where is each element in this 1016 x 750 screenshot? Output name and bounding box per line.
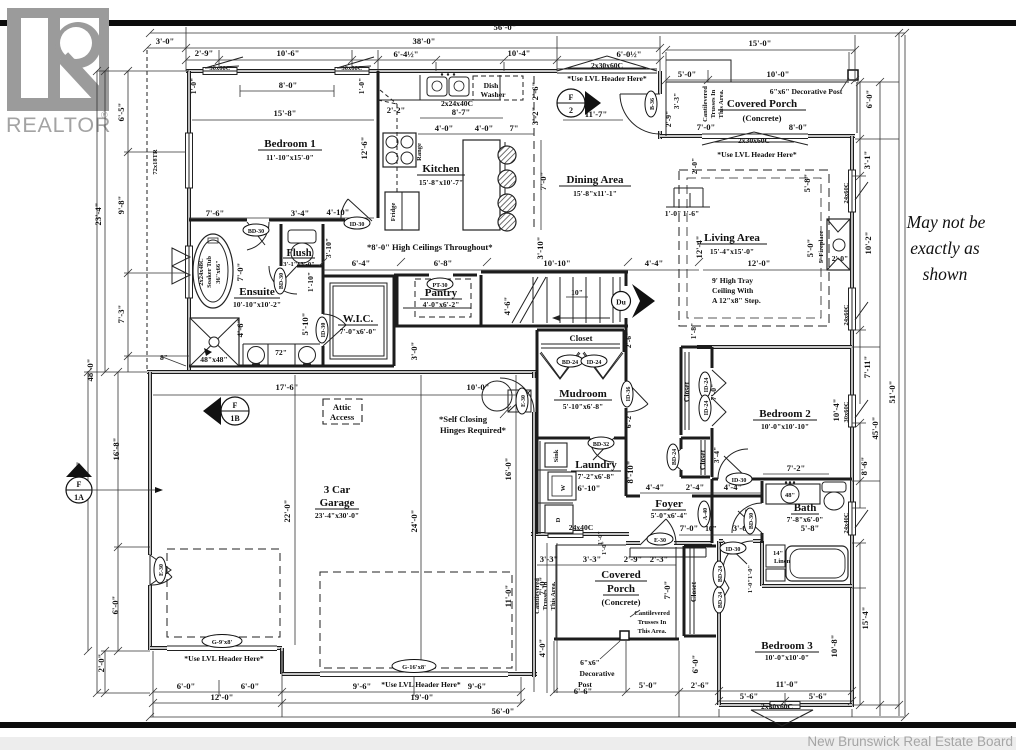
svg-text:2'-0": 2'-0" <box>96 654 106 673</box>
svg-text:Hinges Required*: Hinges Required* <box>440 425 506 435</box>
svg-text:10'-0": 10'-0" <box>767 69 790 79</box>
svg-text:Garage: Garage <box>320 497 355 509</box>
svg-text:Porch: Porch <box>607 583 635 595</box>
svg-text:3'-4": 3'-4" <box>291 208 310 218</box>
svg-text:A 12"x8" Step.: A 12"x8" Step. <box>712 296 761 305</box>
svg-text:6'-4½": 6'-4½" <box>393 49 418 59</box>
svg-text:6'-8": 6'-8" <box>434 258 453 268</box>
svg-text:10'-10"x10'-2": 10'-10"x10'-2" <box>233 300 281 309</box>
svg-text:Closet: Closet <box>698 449 707 470</box>
svg-text:2'-9": 2'-9" <box>664 111 673 127</box>
svg-text:24x60C: 24x60C <box>843 304 850 325</box>
svg-text:4'-0": 4'-0" <box>435 123 454 133</box>
svg-text:24x40C: 24x40C <box>843 512 850 533</box>
svg-text:1'-8": 1'-8" <box>689 323 698 339</box>
svg-text:9'-6": 9'-6" <box>468 681 487 691</box>
svg-text:(Concrete): (Concrete) <box>602 597 641 607</box>
svg-text:7'-0": 7'-0" <box>537 577 547 596</box>
svg-text:10'-6": 10'-6" <box>277 48 300 58</box>
svg-text:10'-0"x10'-0": 10'-0"x10'-0" <box>765 653 809 662</box>
svg-text:3'-10": 3'-10" <box>535 237 545 260</box>
svg-text:Trusses In: Trusses In <box>710 89 717 118</box>
svg-text:7'-3": 7'-3" <box>116 305 126 324</box>
svg-text:Cantilevered: Cantilevered <box>702 86 709 122</box>
svg-text:2'-6": 2'-6" <box>530 82 540 101</box>
svg-text:Closet: Closet <box>689 581 698 602</box>
svg-text:Range: Range <box>416 143 423 161</box>
svg-text:9'-8": 9'-8" <box>116 196 126 215</box>
svg-text:2x24x48C: 2x24x48C <box>198 258 205 286</box>
svg-text:3'-3": 3'-3" <box>672 93 681 109</box>
svg-text:BD-24: BD-24 <box>672 449 678 465</box>
svg-text:22'-0": 22'-0" <box>282 500 292 523</box>
svg-text:*Use LVL Header Here*: *Use LVL Header Here* <box>567 74 647 83</box>
svg-text:6'-10": 6'-10" <box>578 483 601 493</box>
svg-text:4'-0"x6'-2": 4'-0"x6'-2" <box>423 300 460 309</box>
svg-text:Bedroom 3: Bedroom 3 <box>761 640 813 652</box>
svg-text:15'-8"x10'-7": 15'-8"x10'-7" <box>419 178 463 187</box>
svg-text:2'-4": 2'-4" <box>686 482 705 492</box>
svg-text:Dish: Dish <box>484 81 500 90</box>
svg-text:7": 7" <box>509 123 518 133</box>
svg-text:12'-0": 12'-0" <box>748 258 771 268</box>
svg-text:10'-0": 10'-0" <box>467 382 490 392</box>
svg-text:shown: shown <box>923 264 968 284</box>
svg-text:ID-36: ID-36 <box>626 387 632 402</box>
svg-text:PT-30: PT-30 <box>432 283 447 289</box>
svg-text:4'-0": 4'-0" <box>537 639 547 658</box>
svg-text:45'-0": 45'-0" <box>870 417 880 440</box>
svg-text:5'-8": 5'-8" <box>801 523 820 533</box>
svg-text:16'-8": 16'-8" <box>111 438 121 461</box>
svg-text:Bedroom 1: Bedroom 1 <box>264 138 315 150</box>
svg-text:16'-0": 16'-0" <box>503 458 513 481</box>
svg-text:10'-4": 10'-4" <box>831 399 841 422</box>
svg-text:11'-0": 11'-0" <box>776 679 798 689</box>
svg-text:4'-4": 4'-4" <box>645 258 664 268</box>
svg-text:Closet: Closet <box>682 381 691 402</box>
svg-text:3'-3": 3'-3" <box>583 554 602 564</box>
svg-text:May not be: May not be <box>906 212 986 232</box>
svg-text:7'-2"x6'-8": 7'-2"x6'-8" <box>578 472 615 481</box>
svg-text:Linen: Linen <box>774 558 791 565</box>
svg-text:6'-5": 6'-5" <box>116 103 126 122</box>
svg-text:BD-32: BD-32 <box>593 442 609 448</box>
svg-text:7'-0": 7'-0" <box>538 172 548 191</box>
svg-text:Covered: Covered <box>601 569 641 581</box>
svg-text:REALTOR: REALTOR <box>6 113 111 137</box>
svg-text:24x40C: 24x40C <box>569 523 593 532</box>
svg-text:B-36: B-36 <box>650 98 656 110</box>
svg-text:15'-8"x11'-1": 15'-8"x11'-1" <box>573 189 617 198</box>
svg-text:New Brunswick Real Estate Boar: New Brunswick Real Estate Board <box>807 734 1013 749</box>
svg-text:10'-10": 10'-10" <box>543 258 570 268</box>
svg-text:2'-9": 2'-9" <box>195 48 214 58</box>
svg-text:6"x6" Decorative Post: 6"x6" Decorative Post <box>770 87 843 96</box>
svg-text:1'-10": 1'-10" <box>306 272 315 292</box>
svg-text:A-40: A-40 <box>703 508 709 520</box>
svg-text:3'-1"x3'-0": 3'-1"x3'-0" <box>283 261 314 268</box>
svg-text:Ceiling With: Ceiling With <box>712 286 754 295</box>
svg-text:5'-6": 5'-6" <box>809 691 828 701</box>
svg-text:Flush: Flush <box>286 248 311 259</box>
svg-text:10'-8": 10'-8" <box>829 635 839 658</box>
svg-text:Covered Porch: Covered Porch <box>727 98 797 110</box>
svg-text:Access: Access <box>330 412 355 422</box>
svg-text:2'-9": 2'-9" <box>624 554 643 564</box>
svg-text:ID-30: ID-30 <box>726 547 741 553</box>
svg-text:14": 14" <box>773 550 783 557</box>
svg-text:F: F <box>233 401 238 410</box>
svg-text:5'-0": 5'-0" <box>639 680 658 690</box>
svg-text:15'-4": 15'-4" <box>860 607 870 630</box>
svg-text:6'-0": 6'-0" <box>690 655 700 674</box>
svg-text:12'-4": 12'-4" <box>694 236 704 259</box>
svg-text:Soaker Tub: Soaker Tub <box>206 256 213 288</box>
svg-text:7'-0": 7'-0" <box>697 122 716 132</box>
svg-text:Bedroom 2: Bedroom 2 <box>759 408 811 420</box>
svg-text:7'-11": 7'-11" <box>862 356 872 378</box>
svg-text:3'-0": 3'-0" <box>156 36 175 46</box>
svg-text:38'-0": 38'-0" <box>413 36 436 46</box>
svg-text:5'-10": 5'-10" <box>300 313 310 336</box>
svg-text:ID-30: ID-30 <box>732 478 747 484</box>
svg-text:5' Fireplace: 5' Fireplace <box>818 231 825 264</box>
svg-text:10'-2": 10'-2" <box>863 232 873 255</box>
svg-text:BD-30: BD-30 <box>248 229 264 235</box>
svg-text:6'-0": 6'-0" <box>241 681 260 691</box>
svg-text:15'-4"x15'-0": 15'-4"x15'-0" <box>710 247 754 256</box>
svg-text:9'-6": 9'-6" <box>353 681 372 691</box>
svg-text:F: F <box>77 480 82 489</box>
svg-text:5'-8": 5'-8" <box>802 174 812 193</box>
svg-text:exactly as: exactly as <box>910 238 980 258</box>
svg-text:ID-30: ID-30 <box>321 323 327 338</box>
svg-text:6'-2": 6'-2" <box>624 412 633 428</box>
svg-text:6'-0½": 6'-0½" <box>616 49 641 59</box>
svg-text:This Area.: This Area. <box>550 581 557 610</box>
svg-text:56'-0": 56'-0" <box>492 706 515 716</box>
svg-text:24'-0": 24'-0" <box>409 510 419 533</box>
svg-text:2: 2 <box>569 106 573 115</box>
svg-text:*Use LVL Header Here*: *Use LVL Header Here* <box>717 150 797 159</box>
svg-text:Kitchen: Kitchen <box>422 163 459 175</box>
svg-text:7'-0": 7'-0" <box>662 581 672 600</box>
svg-text:BD-30: BD-30 <box>279 273 285 289</box>
svg-text:10": 10" <box>571 288 583 297</box>
svg-text:8'-0": 8'-0" <box>789 122 808 132</box>
svg-text:E-30: E-30 <box>521 395 527 407</box>
svg-text:3'-0": 3'-0" <box>409 342 419 361</box>
svg-text:W.I.C.: W.I.C. <box>343 313 374 325</box>
svg-text:4'-0": 4'-0" <box>475 123 494 133</box>
svg-text:72x18TR: 72x18TR <box>152 149 159 175</box>
svg-text:17'-6": 17'-6" <box>276 382 299 392</box>
svg-text:7'-0": 7'-0" <box>235 263 245 282</box>
svg-text:1'-0": 1'-0" <box>597 531 604 545</box>
svg-text:ID-24: ID-24 <box>704 401 710 416</box>
svg-text:2'-0": 2'-0" <box>690 158 699 174</box>
svg-text:2'-3": 2'-3" <box>650 554 669 564</box>
svg-text:4'-6": 4'-6" <box>502 297 512 316</box>
svg-text:12'-6": 12'-6" <box>359 137 369 160</box>
svg-text:1B: 1B <box>230 414 240 423</box>
svg-text:3'-4": 3'-4" <box>712 447 721 463</box>
svg-text:D: D <box>555 517 562 522</box>
svg-text:48"x48": 48"x48" <box>200 355 227 364</box>
svg-text:3'-1": 3'-1" <box>862 151 872 170</box>
svg-text:Living Area: Living Area <box>704 232 760 244</box>
svg-text:7'-2": 7'-2" <box>787 463 806 473</box>
svg-text:G-9'x8': G-9'x8' <box>212 639 233 646</box>
svg-text:2'-0": 2'-0" <box>832 254 848 263</box>
svg-text:1'-0"1'-0": 1'-0"1'-0" <box>747 565 754 593</box>
svg-text:8'-10": 8'-10" <box>625 461 635 484</box>
svg-text:2'-6": 2'-6" <box>624 332 633 348</box>
svg-text:2'-2": 2'-2" <box>387 105 406 115</box>
svg-text:This Area.: This Area. <box>718 89 725 118</box>
svg-text:8'-0": 8'-0" <box>279 80 298 90</box>
svg-text:6'-0": 6'-0" <box>177 681 196 691</box>
svg-text:6'-0": 6'-0" <box>110 596 120 615</box>
svg-text:36"x66": 36"x66" <box>215 260 222 283</box>
svg-text:BD-24: BD-24 <box>718 592 724 608</box>
svg-text:Dining Area: Dining Area <box>567 174 624 186</box>
svg-text:4'-4": 4'-4" <box>646 482 665 492</box>
svg-text:Ensuite: Ensuite <box>239 286 275 298</box>
svg-text:3 Car: 3 Car <box>324 484 351 496</box>
svg-text:*Self Closing: *Self Closing <box>439 414 488 424</box>
svg-text:This Area.: This Area. <box>638 628 667 635</box>
svg-text:3'-3": 3'-3" <box>540 554 559 564</box>
svg-text:Bath: Bath <box>794 502 817 514</box>
svg-text:Fridge: Fridge <box>390 203 397 222</box>
svg-text:*Use LVL Header Here*: *Use LVL Header Here* <box>381 680 461 689</box>
svg-text:7'-6": 7'-6" <box>206 208 225 218</box>
svg-text:72": 72" <box>275 348 287 357</box>
svg-text:56'-0": 56'-0" <box>494 22 517 32</box>
svg-text:2x30x60C: 2x30x60C <box>591 61 623 70</box>
svg-text:BD-30: BD-30 <box>749 513 755 529</box>
svg-text:ID-24: ID-24 <box>587 360 602 366</box>
svg-text:5'-0": 5'-0" <box>678 69 697 79</box>
svg-text:5'-0": 5'-0" <box>805 239 815 258</box>
svg-text:7'-0": 7'-0" <box>680 523 699 533</box>
svg-text:G-16'x8': G-16'x8' <box>402 664 426 671</box>
svg-text:15'-0": 15'-0" <box>749 38 772 48</box>
svg-text:Post: Post <box>578 680 592 689</box>
svg-text:2'-6": 2'-6" <box>691 680 710 690</box>
svg-text:30x60C: 30x60C <box>843 401 850 422</box>
svg-text:Washer: Washer <box>481 90 507 99</box>
svg-text:8'-7": 8'-7" <box>452 107 471 117</box>
svg-text:1'-0": 1'-0" <box>665 209 681 218</box>
svg-text:2x30x60C: 2x30x60C <box>738 136 770 145</box>
svg-text:5'-6": 5'-6" <box>740 691 759 701</box>
svg-text:Cantilevered: Cantilevered <box>634 610 670 617</box>
svg-text:48": 48" <box>785 492 795 499</box>
svg-text:F: F <box>569 93 574 102</box>
svg-text:ID-30: ID-30 <box>350 222 365 228</box>
svg-text:BD-24: BD-24 <box>718 566 724 582</box>
svg-text:W: W <box>560 484 567 491</box>
svg-text:6'-4": 6'-4" <box>352 258 371 268</box>
svg-text:5'-0"x6'-4": 5'-0"x6'-4" <box>651 511 688 520</box>
svg-text:2x30x60C: 2x30x60C <box>761 702 793 711</box>
svg-text:®: ® <box>101 110 108 120</box>
svg-text:5'-10"x6'-8": 5'-10"x6'-8" <box>563 402 604 411</box>
svg-text:51'-0": 51'-0" <box>887 381 897 404</box>
svg-text:Closet: Closet <box>570 333 593 343</box>
svg-text:1'-6": 1'-6" <box>683 209 699 218</box>
svg-text:10'-4": 10'-4" <box>508 48 531 58</box>
svg-text:12'-0": 12'-0" <box>211 692 234 702</box>
svg-text:11'-0": 11'-0" <box>503 585 513 607</box>
svg-text:6"x6": 6"x6" <box>580 658 600 667</box>
svg-text:Attic: Attic <box>333 402 351 412</box>
svg-text:7'-0"x6'-0": 7'-0"x6'-0" <box>340 327 377 336</box>
svg-text:Mudroom: Mudroom <box>559 388 606 400</box>
svg-text:*Use LVL Header Here*: *Use LVL Header Here* <box>184 654 264 663</box>
svg-text:E-30: E-30 <box>159 564 165 576</box>
svg-text:ID-24: ID-24 <box>704 378 710 393</box>
svg-text:4'-6": 4'-6" <box>235 319 245 338</box>
svg-text:Du: Du <box>616 298 626 307</box>
svg-text:8'-6": 8'-6" <box>859 457 869 476</box>
svg-text:1'-0": 1'-0" <box>357 78 366 94</box>
svg-text:24x60C: 24x60C <box>843 182 850 203</box>
svg-text:1'-0": 1'-0" <box>189 78 198 94</box>
svg-text:Sink: Sink <box>553 449 560 462</box>
svg-text:23'-4"x30'-0": 23'-4"x30'-0" <box>315 511 359 520</box>
svg-text:Decorative: Decorative <box>580 669 616 678</box>
svg-text:6'-0": 6'-0" <box>864 90 874 109</box>
svg-text:BD-24: BD-24 <box>562 360 578 366</box>
svg-text:10'-0"x10'-10": 10'-0"x10'-10" <box>761 422 809 431</box>
svg-text:9' High Tray: 9' High Tray <box>712 276 753 285</box>
svg-text:23'-4": 23'-4" <box>93 203 103 226</box>
svg-text:15'-8": 15'-8" <box>274 108 297 118</box>
svg-text:E-30: E-30 <box>654 538 666 544</box>
svg-text:Trusses In: Trusses In <box>638 619 667 626</box>
svg-text:3'-2": 3'-2" <box>530 107 540 126</box>
svg-text:(Concrete): (Concrete) <box>743 113 782 123</box>
svg-text:Foyer: Foyer <box>655 498 683 510</box>
svg-text:4'-10": 4'-10" <box>327 207 350 217</box>
svg-text:11'-10"x15'-0": 11'-10"x15'-0" <box>266 153 314 162</box>
svg-text:*8'-0" High Ceilings Throughou: *8'-0" High Ceilings Throughout* <box>367 242 493 252</box>
svg-text:1A: 1A <box>74 493 84 502</box>
svg-text:3'-10": 3'-10" <box>324 238 333 258</box>
svg-text:Laundry: Laundry <box>575 459 617 471</box>
